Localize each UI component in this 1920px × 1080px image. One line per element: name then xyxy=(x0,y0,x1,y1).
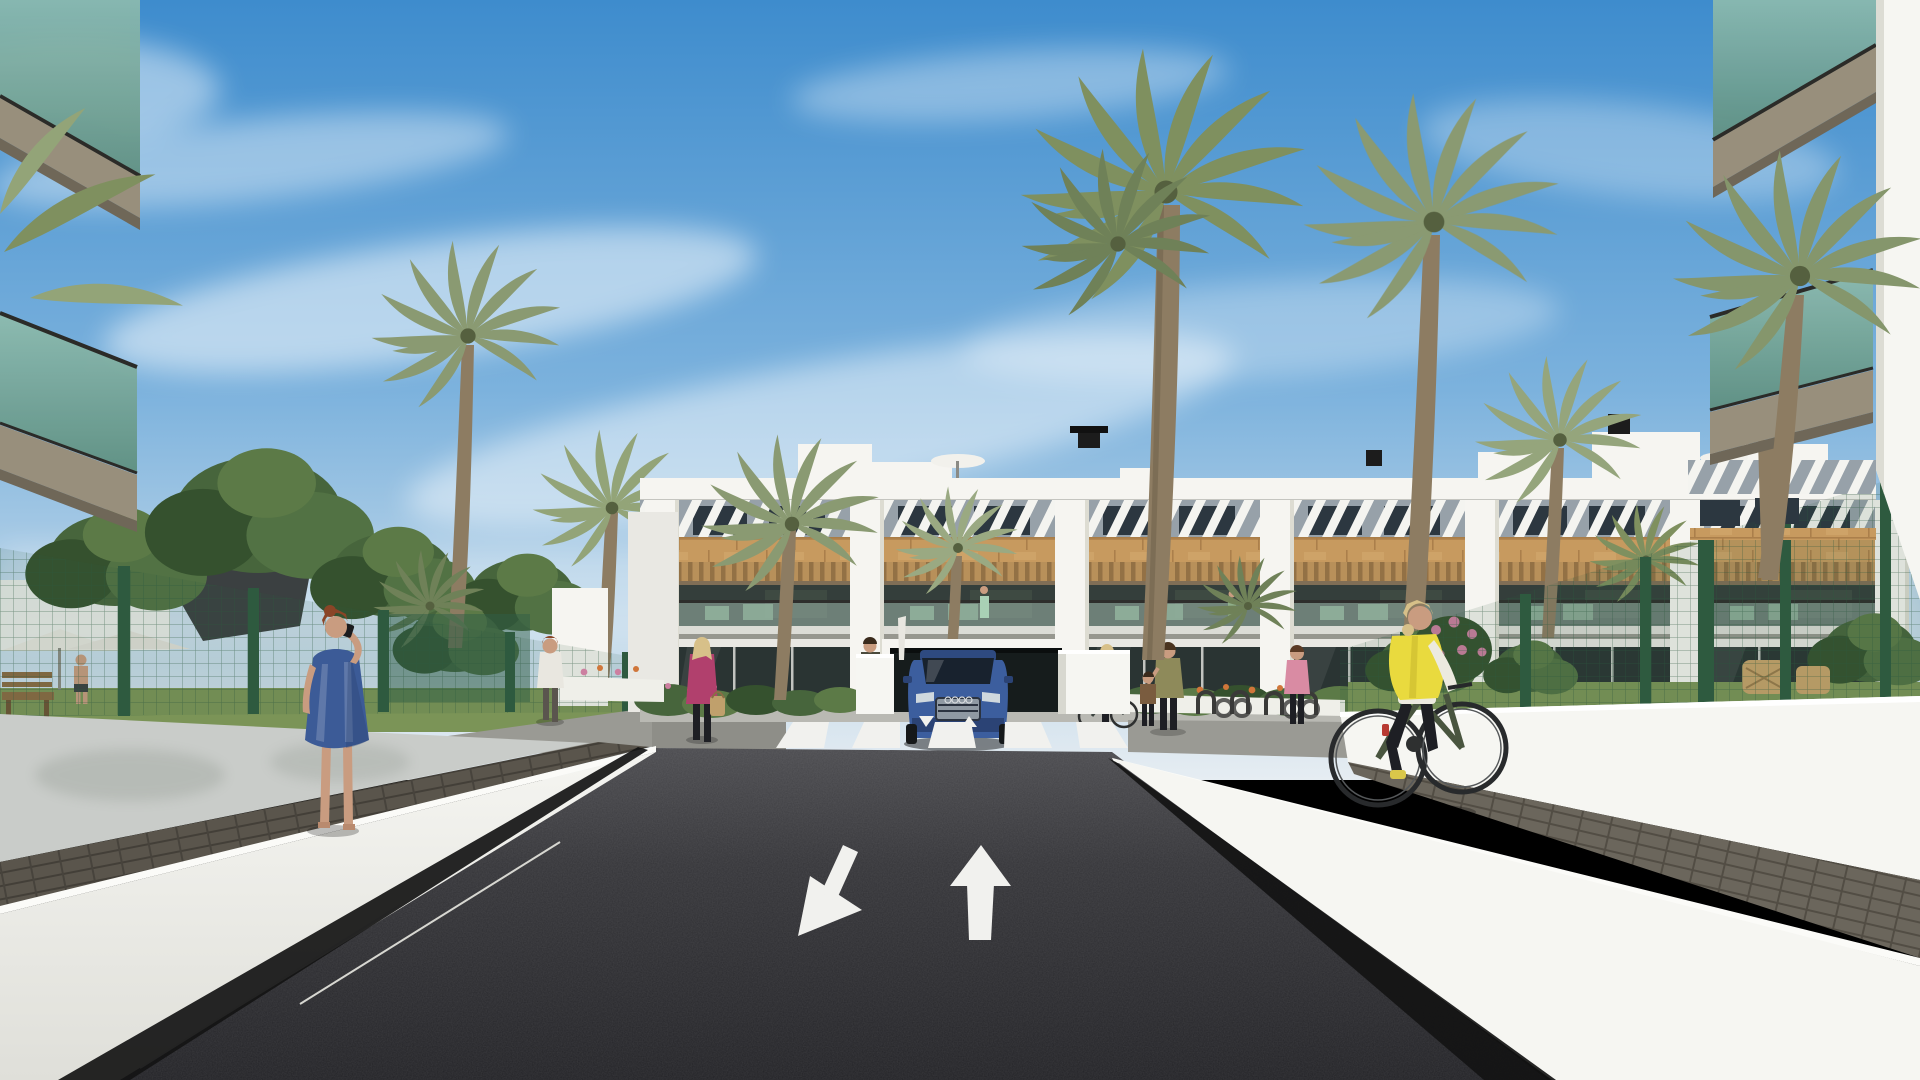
yellow-shoe xyxy=(1390,770,1406,779)
chimney xyxy=(1366,450,1382,466)
rear-light xyxy=(1382,724,1389,736)
scene-render xyxy=(0,0,1920,1080)
planter-wall xyxy=(560,676,664,702)
